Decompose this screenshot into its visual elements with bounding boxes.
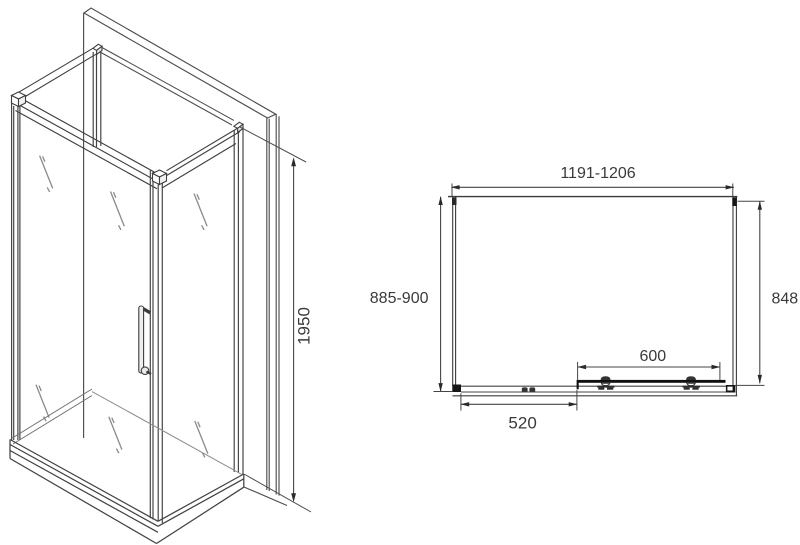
svg-text:885-900: 885-900: [370, 290, 429, 307]
svg-text:1950: 1950: [295, 307, 314, 345]
svg-text:1191-1206: 1191-1206: [560, 165, 635, 182]
svg-text:520: 520: [508, 414, 536, 433]
svg-text:600: 600: [639, 348, 666, 365]
svg-text:848: 848: [772, 291, 799, 308]
